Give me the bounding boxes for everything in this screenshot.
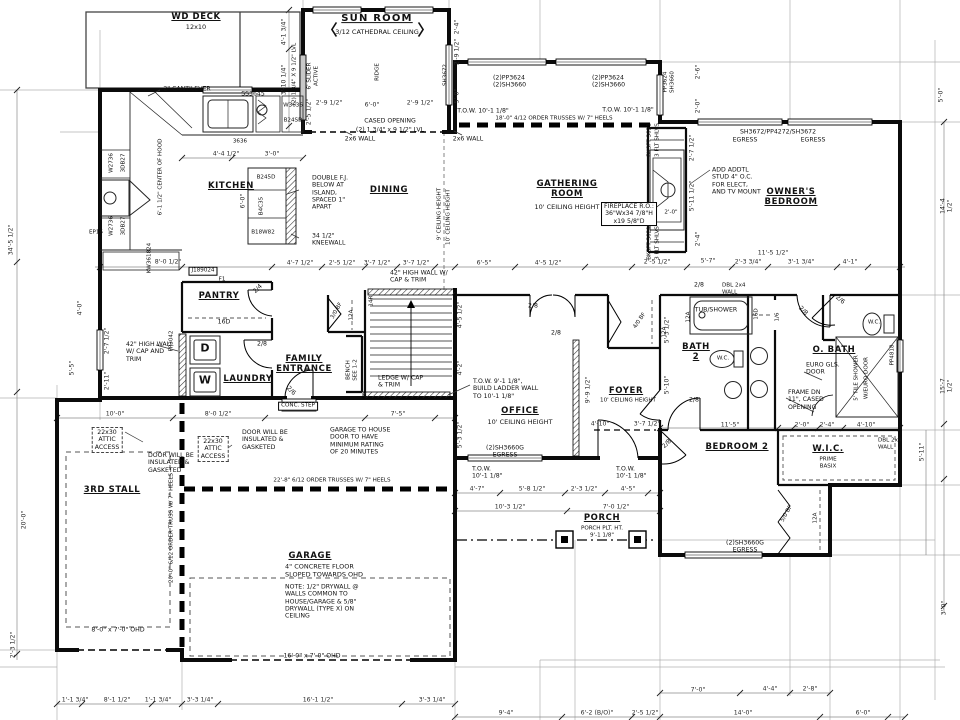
plan-label: NOTE: 1/2" DRYWALL @ WALLS COMMON TO HOU… bbox=[285, 584, 359, 621]
plan-label: 2/4 bbox=[252, 283, 264, 295]
plan-label: 5'-3 1/2" bbox=[663, 317, 670, 344]
plan-label: 3'-1 3/4" bbox=[788, 258, 815, 265]
plan-label: 〉 bbox=[417, 22, 432, 40]
plan-label: 11'-5" bbox=[721, 421, 740, 428]
plan-label: B24SD bbox=[284, 118, 303, 125]
plan-label: 5' TILE SHOWER bbox=[854, 355, 861, 400]
plan-label: 14R bbox=[369, 295, 376, 306]
plan-label: 2x6 WALL bbox=[345, 135, 375, 142]
plan-label: 5'-0" bbox=[937, 88, 944, 103]
plan-label: 4'-5 1/2" bbox=[456, 302, 463, 329]
plan-label: 11'-5 1/2" bbox=[758, 249, 789, 256]
plan-label: 20'-0" bbox=[20, 511, 27, 530]
plan-label: 15'-7 1/2" bbox=[940, 378, 955, 394]
plan-label: 4'-7 1/2" bbox=[287, 259, 314, 266]
plan-label: 9' CEILING HEIGHT bbox=[437, 188, 444, 240]
plan-label: PP3042 bbox=[169, 331, 176, 352]
plan-label: 3'-7 1/2" bbox=[634, 420, 661, 427]
plan-label: 2'-5 1/2" bbox=[632, 709, 659, 716]
plan-label: 2'-9 1/2" bbox=[316, 99, 343, 106]
plan-label: LEDGE W/ CAP & TRIM bbox=[378, 375, 423, 390]
plan-label: T.O.W. 10'-1 1/8" bbox=[457, 107, 508, 114]
plan-label: BENCH SEE 1-2 bbox=[345, 359, 358, 381]
room-bath-2: BATH 2 bbox=[682, 342, 710, 362]
plan-label: 14'-0" bbox=[734, 709, 753, 716]
plan-label: 2/8 bbox=[797, 305, 809, 317]
plan-label: 2/8 bbox=[694, 281, 704, 288]
plan-label: 12A bbox=[686, 312, 693, 323]
plan-label: 4'-1 3/4" bbox=[280, 19, 287, 46]
plan-label: 5'-11" bbox=[918, 443, 925, 462]
plan-label: (2)SH3660G EGRESS bbox=[726, 540, 764, 555]
plan-label: 20'-0" 6/12 ORDER TRUSS W/ 7" HEELS bbox=[169, 473, 176, 583]
plan-label: 3'-3 1/4" bbox=[419, 696, 446, 703]
plan-label: 6'-5" bbox=[477, 259, 492, 266]
room-3rd-stall: 3RD STALL bbox=[84, 485, 141, 495]
plan-label: 9'-4" bbox=[499, 709, 514, 716]
room-bedroom-2: BEDROOM 2 bbox=[705, 442, 768, 452]
plan-label: KW361824 bbox=[147, 243, 154, 273]
room-porch: PORCH bbox=[584, 513, 620, 523]
plan-label: 3'-3 1/4" bbox=[187, 696, 214, 703]
room-o-bath: O. BATH bbox=[813, 345, 856, 355]
plan-label: 1/6 bbox=[775, 312, 782, 321]
plan-label: 8'-0 1/2" bbox=[155, 258, 182, 265]
plan-label: 4'-10" bbox=[591, 420, 610, 427]
plan-label: 3636 bbox=[233, 139, 247, 146]
plan-label: FRAME DN 11", CASED OPENING bbox=[788, 389, 824, 411]
plan-label: 22x30 ATTIC ACCESS bbox=[198, 436, 229, 462]
plan-label: 2'-3 1/2" bbox=[571, 485, 598, 492]
plan-label: T.O.W. 10'-1 1/8" bbox=[616, 466, 647, 481]
plan-label: 4" CONCRETE FLOOR SLOPED TOWARDS OHD bbox=[285, 563, 363, 578]
plan-label: 2/8 bbox=[551, 329, 561, 336]
plan-label: 4'-5" bbox=[621, 485, 636, 492]
plan-label: 2'-4" bbox=[453, 20, 460, 35]
ann-cased-opening: CASED OPENING bbox=[364, 117, 416, 124]
plan-label: 2/8 bbox=[528, 302, 538, 309]
plan-label: 16D bbox=[218, 318, 231, 325]
room-kitchen: KITCHEN bbox=[208, 181, 254, 191]
plan-label: 6'-0" bbox=[239, 194, 246, 209]
plan-label: 34'-5 1/2" bbox=[7, 225, 14, 256]
plan-label: 2'-4" bbox=[820, 421, 835, 428]
plan-label: 6'-0" bbox=[365, 101, 380, 108]
plan-label: EGRESS bbox=[733, 136, 758, 143]
plan-label: W/EURO DOOR bbox=[864, 357, 871, 399]
plan-label: SH3672 bbox=[443, 64, 450, 86]
plan-label: TUB/SHOWER bbox=[695, 306, 737, 313]
plan-label: RIDGE bbox=[375, 63, 382, 81]
plan-label: 3'-10 1/4" bbox=[280, 65, 287, 96]
plan-label: PP3624 SH3660 bbox=[662, 71, 675, 93]
plan-label: J189024 bbox=[188, 267, 217, 276]
plan-label: SS3645 bbox=[241, 90, 265, 97]
plan-label: ADD ADDTL STUD 4" O.C. FOR ELECT, AND TV… bbox=[712, 166, 761, 195]
plan-label: 10'-0" bbox=[106, 410, 125, 417]
plan-label: 2'-4" bbox=[694, 232, 701, 247]
plan-label: 5'-11 1/2" bbox=[688, 181, 695, 212]
plan-label: 8'-0 1/2" bbox=[205, 410, 232, 417]
plan-label: 2'-5 1/2" bbox=[329, 259, 356, 266]
plan-label: 5'-5" bbox=[68, 361, 75, 376]
plan-label: 18'-0" 4/12 ORDER TRUSSES W/ 7" HEELS bbox=[495, 116, 612, 123]
plan-label: B4C35 bbox=[259, 197, 266, 215]
plan-label: B18W82 bbox=[251, 230, 275, 237]
plan-label: 8'-1 1/2" bbox=[104, 696, 131, 703]
plan-label: 5'-3 1/2" bbox=[456, 422, 463, 449]
plan-label: SH3672/PP4272/SH3672 bbox=[740, 128, 816, 135]
plan-label: 2'-3 1/2" bbox=[9, 632, 16, 659]
plan-label: 10' CEILING HEIGHT bbox=[446, 189, 453, 245]
plan-label: 12A bbox=[813, 513, 820, 524]
plan-label: 5'-10" bbox=[663, 376, 670, 395]
plan-label: 3'-0" bbox=[265, 150, 280, 157]
plan-label: 8'-0" x 7'-0" OHD bbox=[91, 626, 144, 633]
plan-label: (2) 1 3/4" X 9 1/2" LVL bbox=[292, 43, 299, 105]
floorplan-sheet: WD DECK12x10SUN ROOM3/12 CATHEDRAL CEILI… bbox=[0, 0, 960, 720]
plan-label: BKSFT 3021 bbox=[647, 226, 654, 260]
room-garage: GARAGE bbox=[288, 551, 331, 561]
plan-label: DBL 2x4 WALL bbox=[878, 437, 901, 450]
plan-label: W.C. bbox=[717, 356, 729, 363]
plan-label: DOOR WILL BE INSULATED & GASKETED bbox=[242, 429, 288, 451]
plan-label: 2'-7 1/2" bbox=[688, 135, 695, 162]
plan-label: 7'-0 1/2" bbox=[603, 503, 630, 510]
floorplan-labels: WD DECK12x10SUN ROOM3/12 CATHEDRAL CEILI… bbox=[0, 0, 960, 720]
room-gathering-room: GATHERING ROOM bbox=[537, 179, 598, 199]
plan-label: (2)PP3624 (2)SH3660 bbox=[592, 75, 625, 90]
room-pantry: PANTRY bbox=[199, 291, 240, 301]
plan-label: EURO GLS. DOOR bbox=[806, 362, 840, 377]
plan-label: 2'-9 1/2" bbox=[407, 99, 434, 106]
room-wd-deck: WD DECK bbox=[171, 12, 220, 22]
plan-label: 14'-4 1/2" bbox=[940, 198, 955, 214]
plan-label: 2'-3 3/4" bbox=[735, 258, 762, 265]
plan-label: 3'-0" bbox=[940, 601, 947, 616]
plan-label: 3DB27 bbox=[121, 217, 128, 236]
plan-label: 10'-3 1/2" bbox=[495, 503, 526, 510]
plan-label: EP15 bbox=[89, 230, 103, 237]
plan-label: 3'-7 1/2" bbox=[403, 259, 430, 266]
room-owners-bedroom: OWNER'S BEDROOM bbox=[765, 187, 818, 207]
plan-label: W2736 bbox=[109, 216, 116, 236]
plan-label: 3/0 BF bbox=[330, 302, 345, 321]
plan-label: 4'-2" bbox=[456, 361, 463, 376]
plan-label: (2)PP3624 (2)SH3660 bbox=[493, 75, 526, 90]
plan-label: (2) 1 3/4" x 9 1/2" LVL bbox=[356, 126, 424, 133]
room-family-entrance: FAMILY ENTRANCE bbox=[276, 354, 332, 374]
plan-label: PRIME BASIX bbox=[819, 456, 836, 469]
plan-label: 2'-9 1/2" bbox=[453, 39, 460, 66]
plan-label: 7'-5" bbox=[391, 410, 406, 417]
plan-label: 2x6 WALL bbox=[453, 135, 483, 142]
plan-label: F1 bbox=[219, 277, 226, 284]
plan-label: 3/12 CATHEDRAL CEILING bbox=[335, 29, 419, 37]
plan-label: 9'-9 1/2" bbox=[584, 377, 591, 404]
room-sun-room: SUN ROOM bbox=[341, 13, 412, 25]
plan-label: 22x30 ATTIC ACCESS bbox=[92, 427, 123, 453]
plan-label: 3DB27 bbox=[121, 154, 128, 173]
plan-label: 4'-4" bbox=[763, 685, 778, 692]
plan-label: 2/6 bbox=[834, 294, 846, 306]
plan-label: W.C. bbox=[868, 320, 880, 327]
plan-label: CONC. STEP bbox=[278, 402, 318, 411]
plan-label: 4'-5 1/2" bbox=[535, 259, 562, 266]
plan-label: W2736 bbox=[109, 153, 116, 173]
room-laundry: LAUNDRY bbox=[223, 374, 272, 384]
plan-label: 2'-6" bbox=[694, 65, 701, 80]
plan-label: 2'-11" bbox=[103, 372, 110, 391]
plan-label: 2'-0" bbox=[795, 421, 810, 428]
plan-label: BKSFT 3021 bbox=[647, 123, 654, 157]
plan-label: 34 1/2" KNEEWALL bbox=[312, 233, 345, 248]
plan-label: 5'-0" bbox=[453, 89, 460, 104]
plan-label: 16'-1 1/2" bbox=[303, 696, 334, 703]
plan-label: 22'-8" 6/12 ORDER TRUSSES W/ 7" HEELS bbox=[273, 478, 390, 485]
plan-label: 16'-0" x 7'-0" OHD bbox=[283, 652, 340, 659]
plan-label: 10' CEILING HEIGHT bbox=[488, 419, 553, 427]
plan-label: 3 FLT SHLVS bbox=[655, 123, 662, 157]
room-foyer: FOYER bbox=[609, 386, 643, 396]
plan-label: DOUBLE F.J. BELOW AT ISLAND, SPACED 1" A… bbox=[312, 175, 348, 212]
plan-label: 3'-7 1/2" bbox=[364, 259, 391, 266]
plan-label: 4'-0" bbox=[76, 301, 83, 316]
plan-label: EGRESS bbox=[801, 136, 826, 143]
plan-label: 42" HIGH WALL W/ CAP AND TRIM bbox=[126, 341, 173, 363]
ann-fireplace: FIREPLACE R.O.: 36"Wx34 7/8"H x19 5/8"D bbox=[601, 202, 657, 226]
room-dining: DINING bbox=[370, 185, 408, 195]
room-wic: W.I.C. bbox=[812, 444, 843, 454]
plan-label: W3636 bbox=[283, 103, 303, 110]
plan-label: PORCH PLT. HT. 9'-1 1/8" bbox=[581, 525, 623, 538]
plan-label: 7'-0" bbox=[691, 686, 706, 693]
plan-label: 2/8 bbox=[689, 396, 699, 403]
plan-label: B245D bbox=[257, 175, 276, 182]
plan-label: 4'-10" bbox=[857, 421, 876, 428]
plan-label: 2/8 bbox=[257, 340, 267, 347]
plan-label: 2/8 bbox=[661, 438, 673, 450]
plan-label: T.O.W. 9'-1 1/8", BUILD LADDER WALL TO 1… bbox=[473, 378, 538, 400]
plan-label: 2'-8" bbox=[803, 685, 818, 692]
plan-label: 2/6 bbox=[285, 385, 297, 397]
plan-label: 1'-1 3/4" bbox=[62, 696, 89, 703]
plan-label: 2'-5 1/2" bbox=[305, 99, 312, 126]
plan-label: 10' CEILING HEIGHT bbox=[535, 204, 600, 212]
plan-label: PP4818 bbox=[890, 345, 897, 366]
plan-label: 6'-1 1/2" CENTER OF HOOD bbox=[158, 139, 165, 216]
plan-label: D bbox=[200, 343, 209, 356]
plan-label: 12A bbox=[349, 310, 356, 321]
plan-label: 12x10 bbox=[186, 24, 206, 32]
plan-label: 2'-5 1/2" bbox=[644, 258, 671, 265]
plan-label: 4/0 BF bbox=[632, 312, 648, 330]
plan-label: 6'-0" bbox=[856, 709, 871, 716]
plan-label: 1'-1 3/4" bbox=[145, 696, 172, 703]
plan-label: DOOR WILL BE INSULATED & GASKETED bbox=[148, 452, 194, 474]
plan-label: GARAGE TO HOUSE DOOR TO HAVE MINIMUM RAT… bbox=[330, 426, 390, 455]
plan-label: 5'-7" bbox=[701, 257, 716, 264]
plan-label: 5'-8 1/2" bbox=[519, 485, 546, 492]
plan-label: 10' CEILING HEIGHT bbox=[600, 398, 656, 405]
plan-label: 6'-2 (B/O)" bbox=[581, 709, 614, 716]
plan-label: 4'-4 1/2" bbox=[213, 150, 240, 157]
plan-label: W bbox=[199, 375, 211, 388]
plan-label: 2" CANTILEVER bbox=[163, 85, 210, 92]
plan-label: (2)SH3660G EGRESS bbox=[486, 445, 524, 460]
room-office: OFFICE bbox=[501, 406, 539, 416]
plan-label: 5/0 BF bbox=[780, 505, 795, 524]
plan-label: 4'-1" bbox=[843, 258, 858, 265]
plan-label: DBL 2x4 WALL bbox=[722, 282, 745, 295]
plan-label: 6' SLIDER ACTIVE bbox=[306, 63, 319, 90]
plan-label: 2'-7 1/2" bbox=[103, 328, 110, 355]
plan-label: 4'-7" bbox=[470, 485, 485, 492]
plan-label: 3 FLT SHLVS bbox=[655, 226, 662, 260]
plan-label: 〈 bbox=[322, 22, 337, 40]
plan-label: T.O.W. 10'-1 1/8" bbox=[602, 106, 653, 113]
plan-label: 42" HIGH WALL W/ CAP & TRIM bbox=[390, 270, 448, 285]
plan-label: 2'-0" bbox=[694, 99, 701, 114]
plan-label: T.O.W. 10'-1 1/8" bbox=[472, 466, 503, 481]
plan-label: 2'-0" bbox=[664, 210, 677, 217]
plan-label: 16D bbox=[754, 308, 761, 319]
